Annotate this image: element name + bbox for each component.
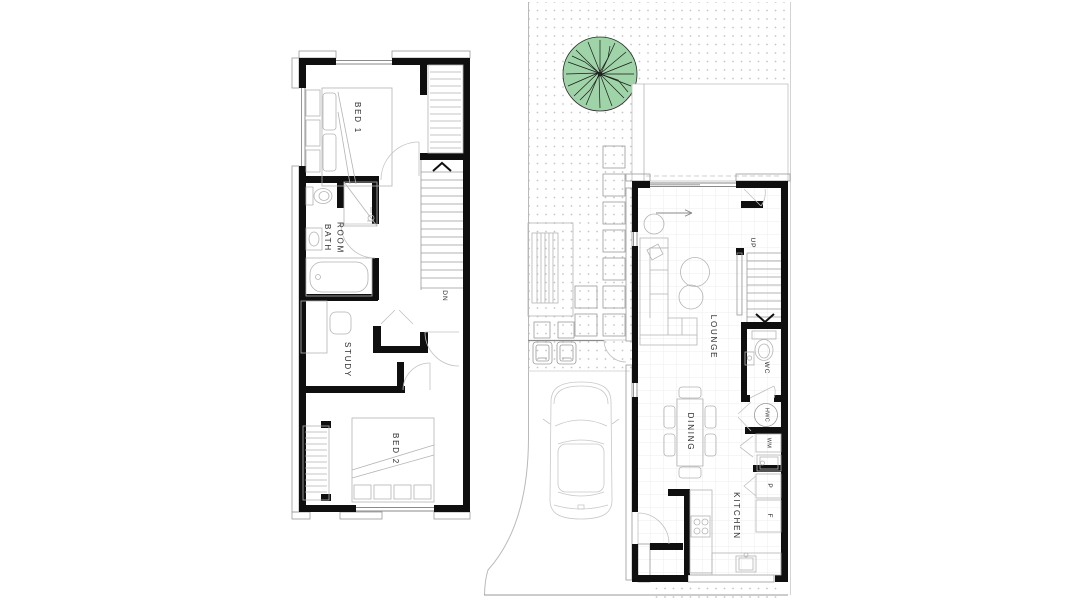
stairs-dn xyxy=(421,160,463,290)
fixture-label-pantry: P xyxy=(764,483,774,488)
ground-floor-plan xyxy=(626,174,790,582)
floor-plan-canvas: BED 1 BATH ROOM STUDY BED 2 DN LOUNGE UP… xyxy=(0,0,1084,602)
bed1-door xyxy=(381,142,419,180)
room-label-bed2: BED 2 xyxy=(389,433,401,465)
floor-plan-drawing xyxy=(0,0,1084,602)
room-label-study: STUDY xyxy=(341,342,353,378)
garden-area-path xyxy=(528,86,632,371)
stair-label-dn: DN xyxy=(439,290,449,301)
driveway-kerb-line xyxy=(485,2,529,595)
windows xyxy=(302,61,435,512)
wardrobe-bed1 xyxy=(428,65,463,153)
room-label-wc: WC xyxy=(761,362,771,375)
upper-floor-plan xyxy=(292,51,470,519)
fixture-label-fridge: F xyxy=(764,514,774,519)
room-label-dining: DINING xyxy=(684,413,696,452)
stair-direction-arrow-up xyxy=(433,163,451,171)
closet-bifold-doors xyxy=(381,310,413,324)
room-label-bathroom: BATH ROOM xyxy=(321,222,346,254)
tree-icon xyxy=(563,37,637,111)
stair-label-up: UP xyxy=(747,237,757,248)
bed2-door xyxy=(403,363,430,390)
bed-1 xyxy=(306,88,392,186)
room-label-lounge: LOUNGE xyxy=(707,315,719,360)
garden-area-rear xyxy=(652,584,782,602)
room-label-kitchen: KITCHEN xyxy=(730,492,742,540)
bathroom-door xyxy=(341,224,375,258)
hall-door xyxy=(425,332,459,366)
fixture-label-hwc: HWC xyxy=(762,408,771,422)
wardrobe-bed2 xyxy=(303,426,329,500)
fixture-label-wm: WM xyxy=(764,438,773,449)
bathtub xyxy=(306,258,372,296)
porch xyxy=(632,84,788,181)
toilet xyxy=(306,187,332,205)
room-label-bed1: BED 1 xyxy=(351,102,363,134)
car xyxy=(543,382,619,519)
basin xyxy=(306,228,322,250)
